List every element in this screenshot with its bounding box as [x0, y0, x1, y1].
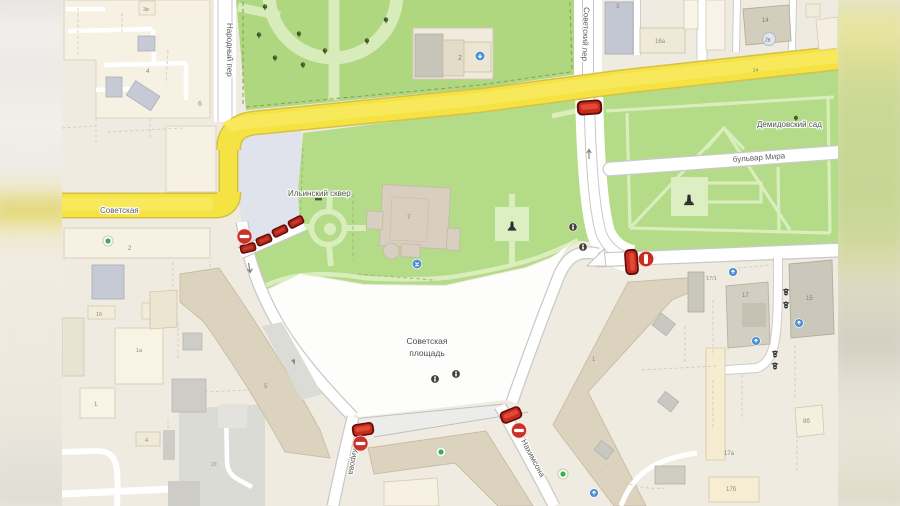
svg-text:Советский пер: Советский пер: [580, 7, 591, 62]
svg-text:14: 14: [762, 18, 769, 24]
svg-text:24: 24: [753, 68, 759, 74]
svg-text:17: 17: [742, 293, 749, 299]
svg-text:1а: 1а: [136, 348, 143, 354]
svg-text:Советская: Советская: [406, 336, 447, 346]
svg-text:15: 15: [806, 296, 813, 302]
svg-text:17а: 17а: [724, 451, 735, 457]
svg-text:Ильинский сквер: Ильинский сквер: [288, 189, 351, 198]
svg-text:Советская: Советская: [100, 206, 139, 215]
svg-text:3в: 3в: [143, 7, 149, 13]
svg-text:2: 2: [458, 55, 462, 62]
svg-text:20: 20: [211, 462, 217, 468]
svg-text:2в: 2в: [765, 38, 771, 44]
svg-text:7: 7: [407, 214, 411, 221]
svg-text:4: 4: [145, 438, 148, 444]
svg-text:Демидовский сад: Демидовский сад: [757, 120, 822, 129]
svg-text:1б: 1б: [96, 312, 102, 318]
svg-text:Народный пер: Народный пер: [225, 23, 234, 77]
svg-text:17/1: 17/1: [706, 276, 717, 282]
svg-text:16а: 16а: [655, 39, 666, 45]
svg-text:4: 4: [146, 68, 150, 75]
svg-text:8б: 8б: [803, 419, 810, 425]
svg-text:6: 6: [198, 101, 202, 108]
svg-text:площадь: площадь: [409, 348, 445, 358]
svg-text:17б: 17б: [726, 487, 737, 493]
